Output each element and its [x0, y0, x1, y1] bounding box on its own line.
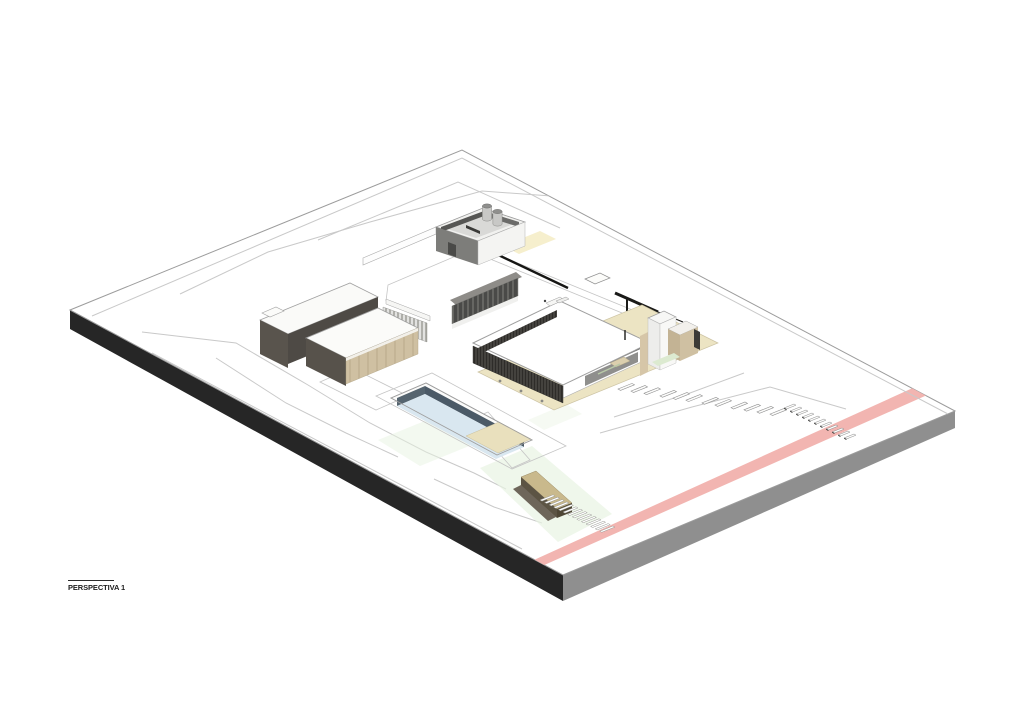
water-tank-cylinder [493, 209, 502, 226]
architectural-perspective-sheet: PERSPECTIVA 1 [0, 0, 1024, 724]
water-tank-cylinder [482, 204, 491, 221]
axonometric-site-drawing [0, 0, 1024, 724]
title-rule [68, 580, 114, 581]
view-title: PERSPECTIVA 1 [68, 583, 125, 592]
title-block: PERSPECTIVA 1 [68, 580, 125, 592]
